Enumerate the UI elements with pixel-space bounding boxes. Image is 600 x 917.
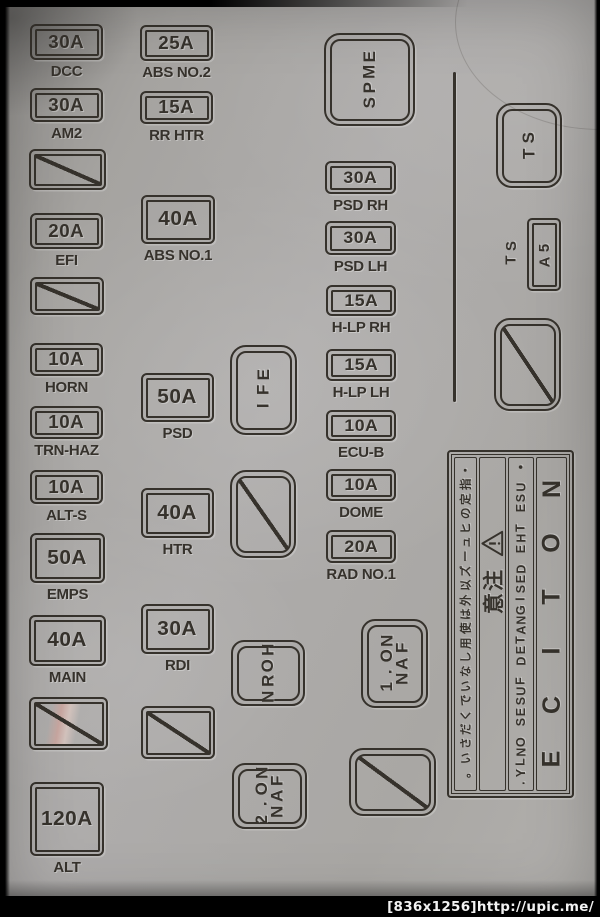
fuse-psd: 50A PSD bbox=[141, 373, 214, 442]
notice-caution-column: 注意 bbox=[479, 457, 506, 791]
photo-bottom-bar: [836x1256]http://upic.me/ bbox=[0, 896, 600, 917]
fuse-rdi: 30A RDI bbox=[141, 604, 214, 674]
photo-bottom-shadow bbox=[0, 880, 600, 896]
relay-label: ST bbox=[523, 130, 534, 161]
fuse-hlp-lh: 15A H-LP LH bbox=[326, 349, 396, 401]
fuse-htr: 40A HTR bbox=[141, 488, 214, 558]
fuse-amp: 5A bbox=[539, 241, 550, 269]
blank-slot-diagonal bbox=[35, 282, 100, 311]
relay-blank bbox=[230, 470, 296, 558]
relay-emps: EMPS bbox=[324, 33, 415, 126]
fuse-label: ALT bbox=[53, 859, 80, 876]
fuse-hlp-rh: 15A H-LP RH bbox=[326, 285, 396, 336]
blank-slot-diagonal bbox=[146, 711, 211, 755]
notice-title-column: NOTICE bbox=[536, 457, 567, 791]
notice-japanese-text: ・指定のヒューズ以外は使用しないでください。 bbox=[460, 458, 472, 790]
relay-horn: HORN bbox=[231, 640, 305, 706]
warning-triangle-icon bbox=[479, 530, 506, 557]
blank-slot-diagonal bbox=[236, 476, 291, 553]
fuse-label: ALT-S bbox=[46, 507, 87, 524]
fuse-amp: 50A bbox=[158, 386, 198, 409]
fuse-amp: 30A bbox=[49, 95, 85, 116]
fuse-label: HORN bbox=[45, 379, 88, 396]
fuse-label: DCC bbox=[51, 63, 83, 80]
fuse-label: RR HTR bbox=[149, 127, 204, 144]
fuse-label: PSD LH bbox=[334, 258, 387, 275]
relay-st: ST bbox=[496, 103, 562, 188]
blank-slot-diagonal bbox=[34, 154, 102, 186]
fuse-ecu-b: 10A ECU-B bbox=[326, 410, 396, 461]
fuse-blank bbox=[29, 697, 108, 750]
relay-label: EMPS bbox=[362, 49, 376, 111]
photo-edge-left bbox=[0, 0, 10, 917]
fuse-label: AM2 bbox=[51, 125, 82, 142]
fuse-label: TRN-HAZ bbox=[34, 442, 99, 459]
fuse-alt-s: 10A ALT-S bbox=[30, 470, 103, 524]
fuse-rad-no1: 20A RAD NO.1 bbox=[326, 530, 396, 583]
fuse-am2: 30A AM2 bbox=[30, 88, 103, 142]
fuse-amp: 15A bbox=[344, 355, 378, 375]
notice-panel: NOTICE • USE THE DESIGNATED FUSES ONLY. … bbox=[447, 450, 574, 798]
relay-label: HORN bbox=[261, 642, 274, 704]
relay-label: FAN bbox=[271, 773, 283, 820]
notice-caution-kanji: 注意 bbox=[482, 569, 503, 615]
fuse-label: PSD RH bbox=[333, 197, 388, 214]
fuse-amp: 10A bbox=[49, 412, 85, 433]
fuse-label: RAD NO.1 bbox=[326, 566, 395, 583]
fuse-dome: 10A DOME bbox=[326, 469, 396, 521]
fuse-horn: 10A HORN bbox=[30, 343, 103, 396]
fuse-label: RDI bbox=[165, 657, 190, 674]
fuse-amp: 20A bbox=[344, 537, 378, 557]
relay-label: FAN bbox=[396, 640, 408, 687]
notice-english-column: • USE THE DESIGNATED FUSES ONLY. bbox=[508, 457, 535, 791]
fuse-amp: 25A bbox=[159, 33, 195, 54]
divider-line bbox=[453, 72, 456, 402]
fuse-label: MAIN bbox=[49, 669, 86, 686]
fuse-amp: 30A bbox=[49, 32, 85, 53]
fuse-abs-no2: 25A ABS NO.2 bbox=[140, 25, 213, 81]
watermark-url: [836x1256]http://upic.me/ bbox=[387, 899, 594, 915]
fuse-amp: 20A bbox=[49, 221, 85, 242]
blank-slot-diagonal bbox=[355, 754, 431, 811]
fuse-abs-no1: 40A ABS NO.1 bbox=[141, 195, 215, 264]
fuse-amp: 10A bbox=[344, 416, 378, 436]
fuse-label: H-LP LH bbox=[333, 384, 390, 401]
fuse-st-5a: 5A bbox=[527, 218, 561, 291]
fuse-amp: 10A bbox=[49, 477, 85, 498]
fuse-amp: 10A bbox=[344, 475, 378, 495]
fuse-blank bbox=[141, 706, 215, 759]
fuse-amp: 15A bbox=[344, 291, 378, 311]
fuse-box-cover-photo: 30A DCC 30A AM2 20A EFI 10A HORN 10A TRN… bbox=[0, 0, 600, 917]
fuse-label: EFI bbox=[55, 252, 77, 269]
blank-slot-diagonal bbox=[34, 702, 104, 746]
fuse-st-side-label: ST bbox=[498, 239, 524, 267]
fuse-amp: 40A bbox=[48, 629, 88, 652]
fuse-amp: 15A bbox=[159, 97, 195, 118]
fuse-psd-rh: 30A PSD RH bbox=[325, 161, 396, 214]
notice-japanese-column: ・指定のヒューズ以外は使用しないでください。 bbox=[454, 457, 477, 791]
fuse-label: DOME bbox=[339, 504, 383, 521]
fuse-emps-50a: 50A EMPS bbox=[30, 533, 105, 603]
fuse-blank bbox=[29, 149, 106, 190]
fuse-amp: 30A bbox=[158, 618, 198, 641]
photo-edge-right bbox=[594, 0, 600, 917]
fuse-label: ABS NO.2 bbox=[142, 64, 210, 81]
notice-title: NOTICE bbox=[542, 458, 561, 790]
relay-label: EFI bbox=[258, 367, 269, 414]
notice-english-text: • USE THE DESIGNATED FUSES ONLY. bbox=[516, 458, 526, 790]
fuse-amp: 40A bbox=[158, 502, 198, 525]
relay-fan-no2: FAN NO.2 bbox=[232, 763, 307, 829]
photo-edge-top bbox=[0, 0, 468, 7]
fuse-amp: 50A bbox=[48, 547, 88, 570]
relay-blank bbox=[349, 748, 436, 816]
fuse-amp: 40A bbox=[158, 208, 198, 231]
fuse-label: PSD bbox=[163, 425, 193, 442]
fuse-amp: 120A bbox=[41, 808, 93, 831]
fuse-rr-htr: 15A RR HTR bbox=[140, 91, 213, 144]
relay-efi: EFI bbox=[230, 345, 297, 435]
fuse-label: EMPS bbox=[47, 586, 88, 603]
fuse-efi-20a: 20A EFI bbox=[30, 213, 103, 269]
relay-blank bbox=[494, 318, 561, 411]
fuse-psd-lh: 30A PSD LH bbox=[325, 221, 396, 275]
fuse-amp: 30A bbox=[344, 228, 378, 248]
blank-slot-diagonal bbox=[500, 324, 556, 406]
fuse-label: H-LP RH bbox=[332, 319, 390, 336]
fuse-label: ABS NO.1 bbox=[144, 247, 212, 264]
fuse-label: ECU-B bbox=[338, 444, 384, 461]
fuse-main: 40A MAIN bbox=[29, 615, 106, 686]
relay-fan-no1: FAN NO.1 bbox=[361, 619, 428, 708]
fuse-amp: 30A bbox=[344, 168, 378, 188]
fuse-amp: 10A bbox=[49, 349, 85, 370]
fuse-dcc: 30A DCC bbox=[30, 24, 103, 80]
fuse-trn-haz: 10A TRN-HAZ bbox=[30, 406, 103, 459]
fuse-alt-120a: 120A ALT bbox=[30, 782, 104, 876]
fuse-blank bbox=[30, 277, 104, 315]
fuse-label: HTR bbox=[163, 541, 193, 558]
